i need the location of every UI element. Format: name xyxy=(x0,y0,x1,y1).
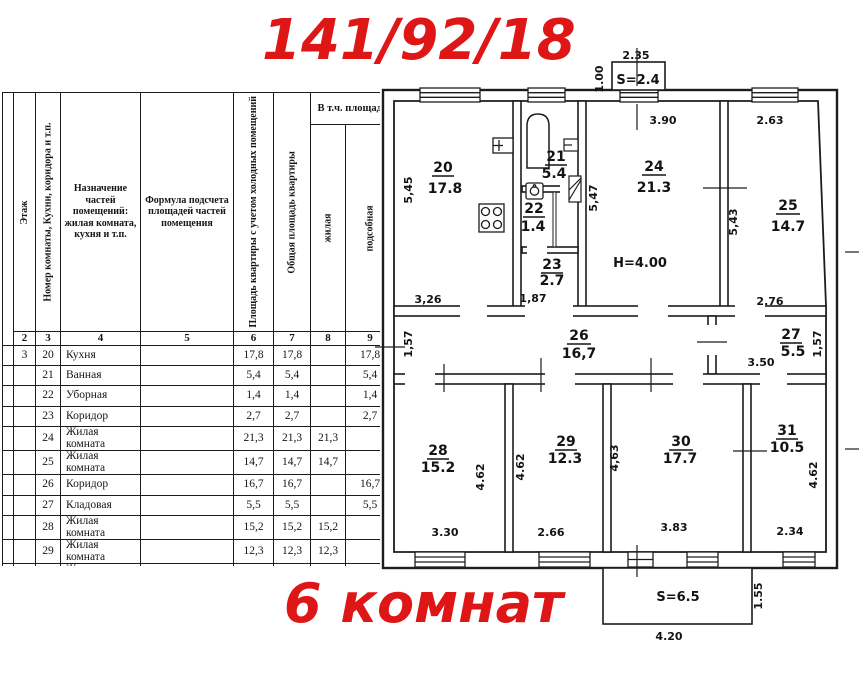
cell-zh xyxy=(311,475,346,495)
cell-zh: 15,2 xyxy=(311,516,346,540)
cell-s2: 15,2 xyxy=(274,516,311,540)
cell-floor xyxy=(14,564,36,567)
dim-26-height: 1,57 xyxy=(402,330,415,357)
cell-floor xyxy=(14,427,36,451)
cell-s1: 21,3 xyxy=(234,427,274,451)
cell-s1: 2,7 xyxy=(234,406,274,426)
cell-zh xyxy=(311,366,346,386)
dim-24-height: 5,47 xyxy=(587,184,600,211)
cell-num: 27 xyxy=(36,495,61,515)
room-28-area: 15.2 xyxy=(421,460,456,476)
room-30-number: 30 xyxy=(671,434,691,450)
ceiling-height-note: H=4.00 xyxy=(613,256,667,271)
cell-num: 22 xyxy=(36,386,61,406)
dim-28-height: 4.62 xyxy=(474,463,487,490)
cell-s1: 1,4 xyxy=(234,386,274,406)
col-header-living: жилая xyxy=(311,125,346,332)
cell-sliver xyxy=(3,516,14,540)
cell-formula xyxy=(141,366,234,386)
cell-name: Жилая комната xyxy=(61,451,141,475)
cell-s2: 17,8 xyxy=(274,345,311,365)
table-row: 30Жилая комната17,717,717,7 xyxy=(3,564,381,567)
cell-s1: 17,7 xyxy=(234,564,274,567)
cell-num: 21 xyxy=(36,366,61,386)
dim-25-width-top: 2.63 xyxy=(756,114,783,127)
windows xyxy=(415,88,815,567)
cell-floor xyxy=(14,406,36,426)
col-header-floor: Этаж xyxy=(14,93,36,332)
room-20-number: 20 xyxy=(433,160,453,176)
room-31-number: 31 xyxy=(777,423,796,439)
cell-s2: 21,3 xyxy=(274,427,311,451)
cell-zh xyxy=(311,386,346,406)
room-29-number: 29 xyxy=(556,434,575,450)
dim-balcony-top-width: 2.35 xyxy=(622,49,649,62)
cell-name: Коридор xyxy=(61,406,141,426)
cell-name: Жилая комната xyxy=(61,427,141,451)
kitchen-sink-icon xyxy=(493,138,513,153)
areas-table-wrap: Этаж Номер комнаты, Кухни, коридора и т.… xyxy=(2,92,380,566)
cell-s2: 5,5 xyxy=(274,495,311,515)
cell-floor: 3 xyxy=(14,345,36,365)
column-numbers-row: 2 3 4 5 6 7 8 9 xyxy=(3,331,381,345)
rooms-table: Этаж Номер комнаты, Кухни, коридора и т.… xyxy=(2,92,380,566)
cell-formula xyxy=(141,495,234,515)
balcony-bottom-area: S=6.5 xyxy=(656,590,699,605)
cell-floor xyxy=(14,475,36,495)
cell-sliver xyxy=(3,475,14,495)
cell-floor xyxy=(14,516,36,540)
col-num: 4 xyxy=(61,331,141,345)
table-row: 28Жилая комната15,215,215,2 xyxy=(3,516,381,540)
dim-27-height: 1,57 xyxy=(811,330,824,357)
cell-name: Жилая комната xyxy=(61,564,141,567)
col-1-sliver xyxy=(3,93,14,346)
table-row: 23Коридор2,72,72,7 xyxy=(3,406,381,426)
dim-24-width: 3.90 xyxy=(649,114,676,127)
table-row: 24Жилая комната21,321,321,3 xyxy=(3,427,381,451)
dim-29-height: 4.62 xyxy=(514,453,527,480)
dim-balcony-top-depth: 1.00 xyxy=(593,65,606,92)
table-row: 26Коридор16,716,716,7 xyxy=(3,475,381,495)
cell-sliver xyxy=(3,386,14,406)
room-count-label: 6 комнат xyxy=(284,572,563,635)
toilet-icon xyxy=(526,183,543,199)
cell-formula xyxy=(141,451,234,475)
table-row: 27Кладовая5,55,55,5 xyxy=(3,495,381,515)
dim-balcony-bottom-depth: 1.55 xyxy=(752,582,765,609)
scanned-floorplan-page: 141/92/18 Этаж Номер комнаты, Кухни, кор… xyxy=(0,0,859,681)
room-27-number: 27 xyxy=(781,327,800,343)
col-num: 3 xyxy=(36,331,61,345)
cell-floor xyxy=(14,495,36,515)
stove-icon xyxy=(479,204,504,232)
col-header-total-area: Общая площадь квартиры xyxy=(274,93,311,332)
balcony-top-area: S=2.4 xyxy=(616,73,659,88)
cell-s2: 17,7 xyxy=(274,564,311,567)
cell-sliver xyxy=(3,495,14,515)
room-28-number: 28 xyxy=(428,443,447,459)
cell-s1: 14,7 xyxy=(234,451,274,475)
cell-s1: 5,4 xyxy=(234,366,274,386)
dim-29-width: 2.66 xyxy=(537,526,564,539)
cell-s2: 16,7 xyxy=(274,475,311,495)
cell-zh xyxy=(311,345,346,365)
dim-20-width: 3,26 xyxy=(414,293,441,306)
table-row: 320Кухня17,817,817,8 xyxy=(3,345,381,365)
cell-s1: 15,2 xyxy=(234,516,274,540)
cell-name: Жилая комната xyxy=(61,516,141,540)
room-26-number: 26 xyxy=(569,328,588,344)
cell-zh xyxy=(311,406,346,426)
dim-25-height: 5,43 xyxy=(727,208,740,235)
cell-num: 28 xyxy=(36,516,61,540)
cell-s1: 17,8 xyxy=(234,345,274,365)
cell-num: 30 xyxy=(36,564,61,567)
room-21-area: 5.4 xyxy=(542,166,567,182)
col-num: 2 xyxy=(14,331,36,345)
cell-name: Кухня xyxy=(61,345,141,365)
cell-s1: 16,7 xyxy=(234,475,274,495)
cell-s2: 1,4 xyxy=(274,386,311,406)
room-20-area: 17.8 xyxy=(428,181,463,197)
cell-num: 25 xyxy=(36,451,61,475)
dim-balcony-bottom-width: 4.20 xyxy=(655,630,682,643)
cell-formula xyxy=(141,345,234,365)
cell-name: Жилая комната xyxy=(61,540,141,564)
cell-num: 26 xyxy=(36,475,61,495)
cell-num: 29 xyxy=(36,540,61,564)
rooms-table-body: 320Кухня17,817,817,821Ванная5,45,45,422У… xyxy=(3,345,381,566)
dim-23-width: 1,87 xyxy=(519,292,546,305)
cell-name: Уборная xyxy=(61,386,141,406)
dim-20-height: 5,45 xyxy=(402,176,415,203)
col-header-room-number: Номер комнаты, Кухни, коридора и т.п. xyxy=(36,93,61,332)
room-21-number: 21 xyxy=(546,149,565,165)
cell-s2: 12,3 xyxy=(274,540,311,564)
cell-sliver xyxy=(3,406,14,426)
cell-sliver xyxy=(3,366,14,386)
room-22-area: 1.4 xyxy=(521,219,546,235)
room-25-area: 14.7 xyxy=(771,219,806,235)
col-header-purpose: Назначение частей помещений: жилая комна… xyxy=(61,93,141,332)
dim-30-width: 3.83 xyxy=(660,521,687,534)
cell-formula xyxy=(141,427,234,451)
cell-name: Кладовая xyxy=(61,495,141,515)
room-30-area: 17.7 xyxy=(663,451,698,467)
room-23-area: 2.7 xyxy=(540,273,565,289)
table-row: 22Уборная1,41,41,4 xyxy=(3,386,381,406)
cell-formula xyxy=(141,564,234,567)
col-num: 6 xyxy=(234,331,274,345)
cell-zh xyxy=(311,495,346,515)
room-29-area: 12.3 xyxy=(548,451,583,467)
cell-sliver xyxy=(3,451,14,475)
col-num: 8 xyxy=(311,331,346,345)
cell-num: 20 xyxy=(36,345,61,365)
room-25-number: 25 xyxy=(778,198,797,214)
cell-num: 23 xyxy=(36,406,61,426)
cell-s2: 5,4 xyxy=(274,366,311,386)
cell-formula xyxy=(141,540,234,564)
dim-25-width-bottom: 2.76 xyxy=(756,295,783,308)
room-22-number: 22 xyxy=(524,201,543,217)
cell-zh: 12,3 xyxy=(311,540,346,564)
cell-sliver xyxy=(3,564,14,567)
cell-zh: 21,3 xyxy=(311,427,346,451)
cell-s1: 12,3 xyxy=(234,540,274,564)
table-row: 21Ванная5,45,45,4 xyxy=(3,366,381,386)
dim-29-30-height: 4,63 xyxy=(608,444,621,471)
col-header-incl-area: В т.ч. площадь xyxy=(311,93,381,125)
cell-name: Коридор xyxy=(61,475,141,495)
cell-s1: 5,5 xyxy=(234,495,274,515)
dim-28-width: 3.30 xyxy=(431,526,458,539)
bath-sink-icon xyxy=(564,139,578,151)
cell-sliver xyxy=(3,345,14,365)
room-26-area: 16,7 xyxy=(562,346,597,362)
cell-formula xyxy=(141,475,234,495)
electric-panel-icon xyxy=(569,176,581,202)
room-27-area: 5.5 xyxy=(781,344,806,360)
cell-s2: 2,7 xyxy=(274,406,311,426)
room-24-area: 21.3 xyxy=(637,180,672,196)
cell-sliver xyxy=(3,540,14,564)
table-row: 25Жилая комната14,714,714,7 xyxy=(3,451,381,475)
cell-formula xyxy=(141,406,234,426)
room-24-number: 24 xyxy=(644,159,664,175)
dim-27-width: 3.50 xyxy=(747,356,774,369)
cell-floor xyxy=(14,386,36,406)
col-num: 5 xyxy=(141,331,234,345)
cell-floor xyxy=(14,451,36,475)
cell-floor xyxy=(14,540,36,564)
room-31-area: 10.5 xyxy=(770,440,805,456)
col-header-area-with-cold: Площадь квартиры с учетом холодных помещ… xyxy=(234,93,274,332)
dim-31-width: 2.34 xyxy=(776,525,803,538)
cell-zh: 17,7 xyxy=(311,564,346,567)
table-row: 29Жилая комната12,312,312,3 xyxy=(3,540,381,564)
cell-zh: 14,7 xyxy=(311,451,346,475)
cell-formula xyxy=(141,386,234,406)
col-num: 7 xyxy=(274,331,311,345)
col-header-formula: Формула подсчета площадей частей помещен… xyxy=(141,93,234,332)
dim-31-height: 4.62 xyxy=(807,461,820,488)
cell-name: Ванная xyxy=(61,366,141,386)
cell-num: 24 xyxy=(36,427,61,451)
cell-floor xyxy=(14,366,36,386)
cell-sliver xyxy=(3,427,14,451)
cell-s2: 14,7 xyxy=(274,451,311,475)
room-23-number: 23 xyxy=(542,257,561,273)
cell-formula xyxy=(141,516,234,540)
